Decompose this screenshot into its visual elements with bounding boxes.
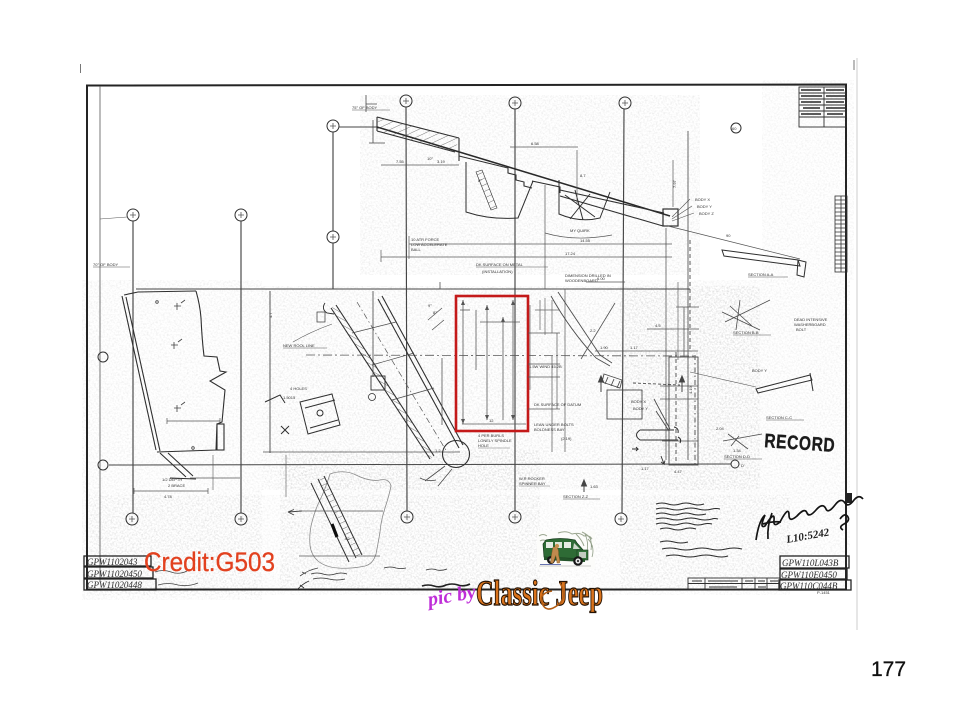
svg-text:GPW110E0450: GPW110E0450 bbox=[781, 570, 837, 580]
svg-text:.62: .62 bbox=[344, 536, 350, 541]
svg-text:SECTION D-D: SECTION D-D bbox=[724, 454, 750, 459]
svg-text:9°: 9° bbox=[428, 303, 432, 308]
svg-text:7.55: 7.55 bbox=[396, 159, 405, 164]
svg-text:GPW11020450: GPW11020450 bbox=[87, 569, 142, 579]
svg-text:1.63: 1.63 bbox=[590, 484, 599, 489]
svg-text:(INSTALLATION): (INSTALLATION) bbox=[482, 269, 513, 274]
svg-text:1.17: 1.17 bbox=[630, 345, 639, 350]
svg-text:75° OF BODY: 75° OF BODY bbox=[352, 105, 377, 110]
svg-text:4.47: 4.47 bbox=[674, 469, 683, 474]
svg-text:1.17: 1.17 bbox=[641, 466, 650, 471]
svg-text:BODY Y: BODY Y bbox=[697, 204, 712, 209]
svg-text:BODY Y: BODY Y bbox=[633, 406, 648, 411]
svg-text:4.5: 4.5 bbox=[655, 323, 661, 328]
svg-text:60: 60 bbox=[732, 126, 737, 131]
svg-text:6.00: 6.00 bbox=[597, 276, 606, 281]
svg-text:(2.19): (2.19) bbox=[561, 436, 572, 441]
svg-text:17.24: 17.24 bbox=[565, 251, 576, 256]
svg-text:8°: 8° bbox=[433, 310, 437, 315]
svg-text:4.7: 4.7 bbox=[268, 312, 273, 318]
svg-text:BODY X: BODY X bbox=[631, 399, 646, 404]
svg-text:90: 90 bbox=[726, 233, 731, 238]
svg-text:8°: 8° bbox=[478, 178, 482, 183]
svg-text:SECTION Z-Z: SECTION Z-Z bbox=[563, 494, 589, 499]
svg-text:P-1451: P-1451 bbox=[817, 590, 831, 595]
svg-text:4.19: 4.19 bbox=[688, 385, 693, 394]
svg-text:2 BRACE: 2 BRACE bbox=[168, 483, 185, 488]
svg-text:1.2: 1.2 bbox=[435, 448, 441, 453]
svg-text:SECTION A-A: SECTION A-A bbox=[748, 272, 774, 277]
svg-text:Credit:G503: Credit:G503 bbox=[144, 547, 275, 577]
svg-text:4 HOLES: 4 HOLES bbox=[290, 386, 307, 391]
svg-text:6.58: 6.58 bbox=[531, 141, 540, 146]
svg-text:2.2: 2.2 bbox=[590, 328, 596, 333]
svg-text:10°: 10° bbox=[427, 156, 433, 161]
svg-text:D': D' bbox=[741, 463, 745, 468]
svg-text:177: 177 bbox=[871, 658, 906, 681]
svg-text:BOLDNESS BAY: BOLDNESS BAY bbox=[534, 427, 565, 432]
svg-text:DK SURFACE OF DATUM: DK SURFACE OF DATUM bbox=[534, 402, 581, 407]
svg-text:14.55: 14.55 bbox=[580, 238, 591, 243]
svg-text:SECTION C-C: SECTION C-C bbox=[766, 415, 792, 420]
svg-text:DK SURFACE ON METAL: DK SURFACE ON METAL bbox=[476, 262, 524, 267]
svg-text:BODY Z: BODY Z bbox=[699, 211, 714, 216]
svg-text:12: 12 bbox=[489, 418, 494, 423]
svg-text:GPW110L043B: GPW110L043B bbox=[782, 558, 839, 568]
svg-text:BALL: BALL bbox=[411, 247, 422, 252]
svg-text:SECTION B-B: SECTION B-B bbox=[733, 330, 759, 335]
svg-text:4.78: 4.78 bbox=[164, 494, 173, 499]
svg-text:BOLT: BOLT bbox=[796, 327, 807, 332]
svg-text:MY QUIRK: MY QUIRK bbox=[570, 228, 590, 233]
svg-text:7.97: 7.97 bbox=[672, 179, 677, 188]
svg-text:GPW1102043: GPW1102043 bbox=[87, 557, 138, 567]
svg-text:2.04: 2.04 bbox=[716, 426, 725, 431]
svg-text:70° OF BODY: 70° OF BODY bbox=[93, 262, 118, 267]
svg-text:HOLE: HOLE bbox=[478, 443, 489, 448]
svg-text:1.5015: 1.5015 bbox=[283, 395, 296, 400]
svg-text:BODY Y: BODY Y bbox=[752, 368, 767, 373]
svg-text:NEW ROOL LINE: NEW ROOL LINE bbox=[283, 343, 315, 348]
svg-text:1.90: 1.90 bbox=[600, 345, 609, 350]
svg-text:GPW11020448: GPW11020448 bbox=[87, 580, 142, 590]
svg-text:BODY X: BODY X bbox=[695, 197, 710, 202]
svg-text:8.7: 8.7 bbox=[580, 173, 586, 178]
svg-text:1.34: 1.34 bbox=[733, 448, 742, 453]
svg-text:SPINNER BAY: SPINNER BAY bbox=[519, 481, 546, 486]
svg-text:Classic Jeep: Classic Jeep bbox=[476, 573, 603, 613]
svg-text:3.19: 3.19 bbox=[437, 159, 446, 164]
